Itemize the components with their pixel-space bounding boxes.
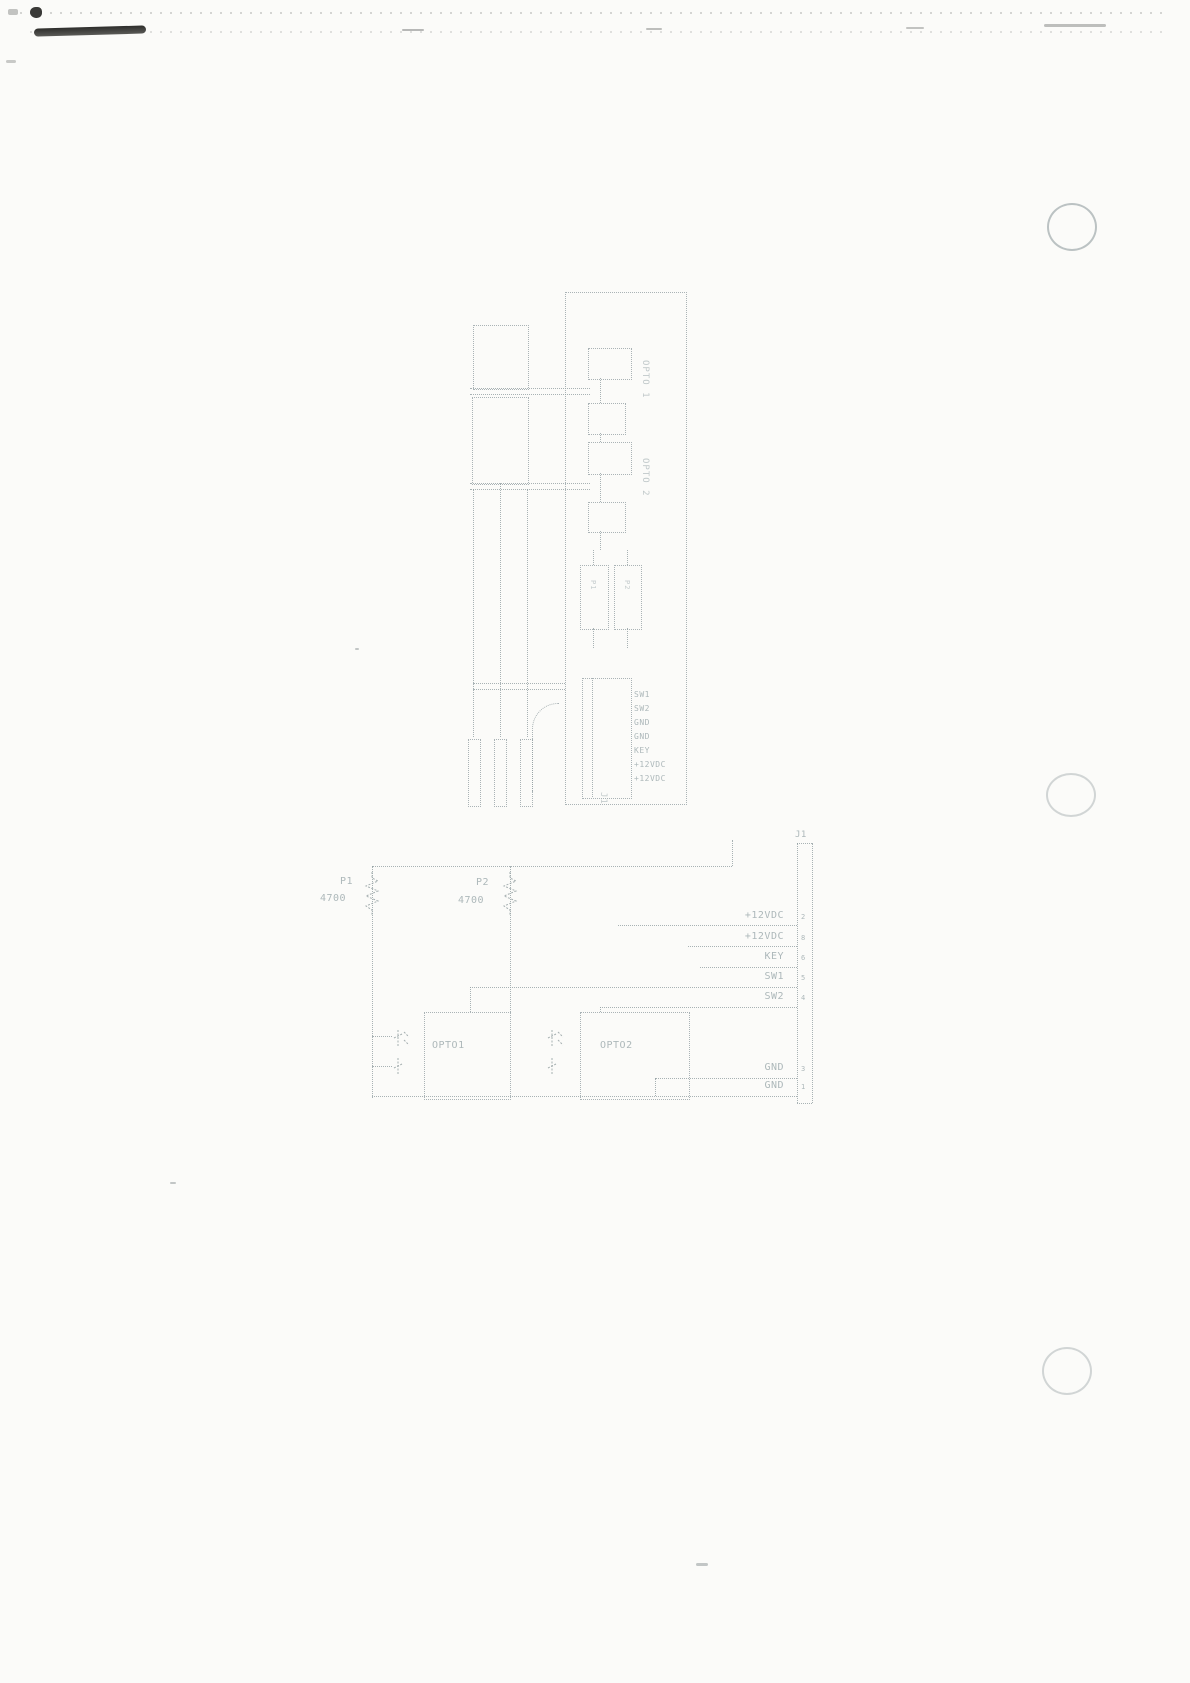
pin-label: KEY [714, 951, 784, 962]
curved-trace [532, 703, 559, 792]
scan-speck [170, 1182, 176, 1184]
signal-line-12v-2 [688, 946, 797, 947]
component-pad [588, 348, 632, 380]
signal-line-12v-1 [618, 925, 797, 926]
resistor-lead [627, 550, 628, 565]
trace [473, 683, 565, 684]
upper-connector-inner-line [592, 678, 593, 797]
hole-punch-shadow [1046, 773, 1096, 817]
signal-line-gnd-1 [655, 1078, 797, 1079]
trace [527, 489, 528, 737]
trace [500, 483, 501, 737]
scan-dash [1044, 24, 1106, 27]
led-symbol [392, 1028, 424, 1076]
scan-dash [402, 29, 424, 31]
pin-label: GND [714, 1062, 784, 1073]
wire [372, 1066, 392, 1067]
pin-number: 3 [801, 1065, 806, 1073]
hole-punch-shadow [1047, 203, 1097, 251]
trace [470, 394, 590, 395]
resistor-symbol-p1 [364, 872, 380, 916]
pin-number: 8 [801, 934, 806, 942]
pin-number: 2 [801, 913, 806, 921]
pin-number: 6 [801, 954, 806, 962]
resistor-body [580, 565, 609, 630]
pin-number: 1 [801, 1083, 806, 1091]
pin-label: +12VDC [634, 760, 666, 769]
pin-label: KEY [634, 746, 650, 755]
component-pad [588, 442, 632, 475]
pin-label: SW2 [634, 704, 650, 713]
component-pad [588, 403, 626, 435]
scan-noise-line-second [30, 31, 1170, 33]
opto1-box [424, 1012, 511, 1100]
resistor-body [614, 565, 642, 630]
wire [600, 1007, 601, 1012]
scanned-schematic-page: OPTO 1 OPTO 2 P1 P2 SW1 SW2 GND GND KEY … [0, 0, 1190, 1683]
trace [473, 689, 565, 690]
signal-line-sw1 [470, 987, 797, 988]
ink-scribble-artifact [34, 25, 146, 36]
pin-label: +12VDC [714, 910, 784, 921]
pin-label: +12VDC [714, 931, 784, 942]
ink-blot-artifact [30, 7, 42, 18]
wire [655, 1078, 656, 1096]
pin-number: 4 [801, 994, 806, 1002]
opto2-box [580, 1012, 690, 1100]
resistor-ref: P2 [476, 877, 489, 888]
opto1-label-rotated: OPTO 1 [640, 360, 650, 399]
pad-stem [600, 433, 601, 442]
opto2-label: OPTO2 [600, 1040, 633, 1051]
resistor-ref: P1 [340, 876, 353, 887]
pad-stem [600, 378, 601, 403]
pin-label: SW1 [634, 690, 650, 699]
pin-label: SW1 [714, 971, 784, 982]
hole-punch-shadow [1042, 1347, 1092, 1395]
scan-dash [646, 28, 662, 30]
scan-dash [8, 9, 18, 15]
scan-speck [696, 1563, 708, 1566]
resistor-ref-rotated: P1 [589, 580, 597, 590]
trace [470, 483, 590, 484]
left-margin-tick [6, 60, 16, 63]
resistor-lead [627, 628, 628, 648]
power-rail [372, 866, 732, 867]
pin-number: 5 [801, 974, 806, 982]
signal-line-sw2 [600, 1007, 797, 1008]
pin-label: GND [634, 718, 650, 727]
component-pad [588, 502, 626, 533]
pad-stem [600, 531, 601, 550]
pin-label: SW2 [714, 991, 784, 1002]
resistor-ref-rotated: P2 [623, 580, 631, 590]
resistor-symbol-p2 [502, 872, 518, 916]
pad-stem [600, 473, 601, 502]
opto1-label: OPTO1 [432, 1040, 465, 1051]
connector-bar-right [812, 843, 813, 1103]
pin-label: GND [714, 1080, 784, 1091]
trace [470, 489, 590, 490]
scan-speck [355, 648, 359, 650]
resistor-lead [593, 628, 594, 648]
trace [470, 388, 590, 389]
pin-label: GND [634, 732, 650, 741]
signal-line-gnd-2 [372, 1096, 797, 1097]
trace-block [473, 325, 529, 390]
wire [470, 987, 471, 1012]
connector-finger [468, 739, 481, 807]
led-symbol [546, 1028, 578, 1076]
connector-ref: J1 [795, 830, 807, 840]
upper-connector-body [582, 678, 632, 799]
opto2-label-rotated: OPTO 2 [640, 458, 650, 497]
trace [473, 489, 474, 737]
power-rail-stub [732, 840, 733, 866]
trace-block [472, 397, 529, 485]
pin-label: +12VDC [634, 774, 666, 783]
connector-bar-left [797, 843, 798, 1103]
wire [372, 1036, 392, 1037]
connector-bar-top [797, 843, 812, 844]
connector-bar-bottom [797, 1103, 812, 1104]
resistor-value: 4700 [458, 895, 484, 906]
scan-noise-line-top [20, 12, 1170, 14]
scan-dash [906, 27, 924, 29]
upper-connector-ref-rotated: J1 [598, 792, 608, 805]
resistor-value: 4700 [320, 893, 346, 904]
signal-line-key [700, 967, 797, 968]
resistor-lead [593, 550, 594, 565]
connector-finger [494, 739, 507, 807]
